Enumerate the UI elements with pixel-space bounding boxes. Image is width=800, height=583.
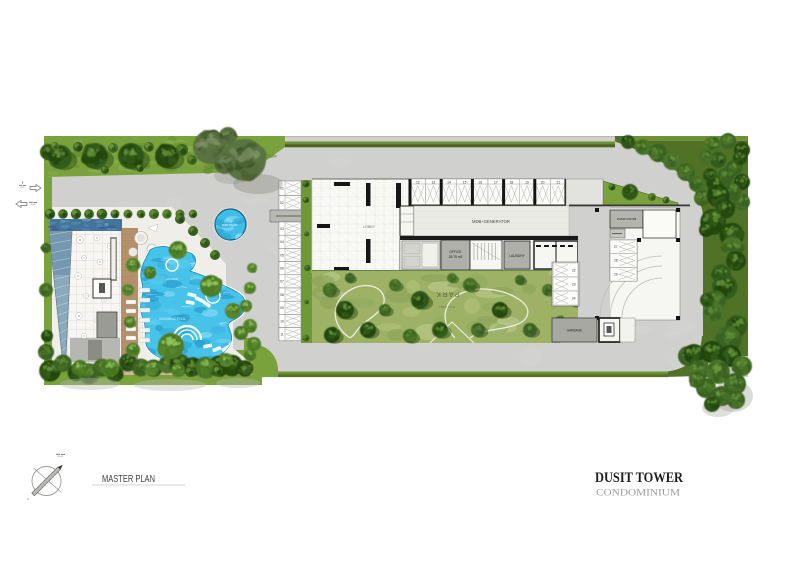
svg-text:MASTER PLAN: MASTER PLAN <box>102 473 155 485</box>
svg-text:18: 18 <box>510 181 514 185</box>
svg-text:S: S <box>27 497 29 501</box>
svg-text:CONDOMINIUM: CONDOMINIUM <box>596 489 681 499</box>
svg-text:PUMP ROOM: PUMP ROOM <box>617 217 637 221</box>
svg-text:04: 04 <box>280 240 284 244</box>
svg-text:LAUNDRY: LAUNDRY <box>509 254 525 258</box>
svg-text:12: 12 <box>416 181 420 185</box>
svg-text:MDB+GENERATOR: MDB+GENERATOR <box>472 219 510 224</box>
svg-text:13: 13 <box>432 181 436 185</box>
svg-text:GARBAGE: GARBAGE <box>567 329 583 333</box>
svg-text:20: 20 <box>541 181 545 185</box>
svg-text:29: 29 <box>614 272 618 276</box>
svg-text:28.75 m2: 28.75 m2 <box>449 255 463 259</box>
svg-text:14: 14 <box>447 181 451 185</box>
svg-text:08: 08 <box>280 293 284 297</box>
svg-text:06: 06 <box>280 267 284 271</box>
svg-text:SUN DECK: SUN DECK <box>222 223 238 227</box>
svg-text:JACUZZI: JACUZZI <box>166 277 178 281</box>
svg-text:03: 03 <box>280 227 284 231</box>
svg-text:17: 17 <box>494 181 498 185</box>
svg-text:PARK: PARK <box>435 290 460 297</box>
svg-text:05: 05 <box>280 253 284 257</box>
svg-text:24: 24 <box>572 297 576 301</box>
svg-text:02: 02 <box>280 201 284 205</box>
svg-text:19: 19 <box>525 181 529 185</box>
svg-text:23: 23 <box>572 283 576 287</box>
svg-text:PLAY AREA: PLAY AREA <box>439 305 455 309</box>
svg-text:16: 16 <box>478 181 482 185</box>
svg-text:OFFICE: OFFICE <box>449 250 462 254</box>
svg-text:11: 11 <box>280 333 284 337</box>
svg-text:LOBBY: LOBBY <box>363 225 376 229</box>
svg-text:07: 07 <box>280 280 284 284</box>
svg-text:09: 09 <box>280 306 284 310</box>
svg-text:28: 28 <box>614 259 618 263</box>
svg-text:DUSIT TOWER: DUSIT TOWER <box>595 470 683 486</box>
svg-text:15: 15 <box>463 181 467 185</box>
svg-text:10: 10 <box>280 319 284 323</box>
svg-text:21: 21 <box>556 181 560 185</box>
svg-text:22: 22 <box>572 269 576 273</box>
svg-text:SWIMMING POOL: SWIMMING POOL <box>159 317 186 321</box>
svg-text:27: 27 <box>614 245 618 249</box>
